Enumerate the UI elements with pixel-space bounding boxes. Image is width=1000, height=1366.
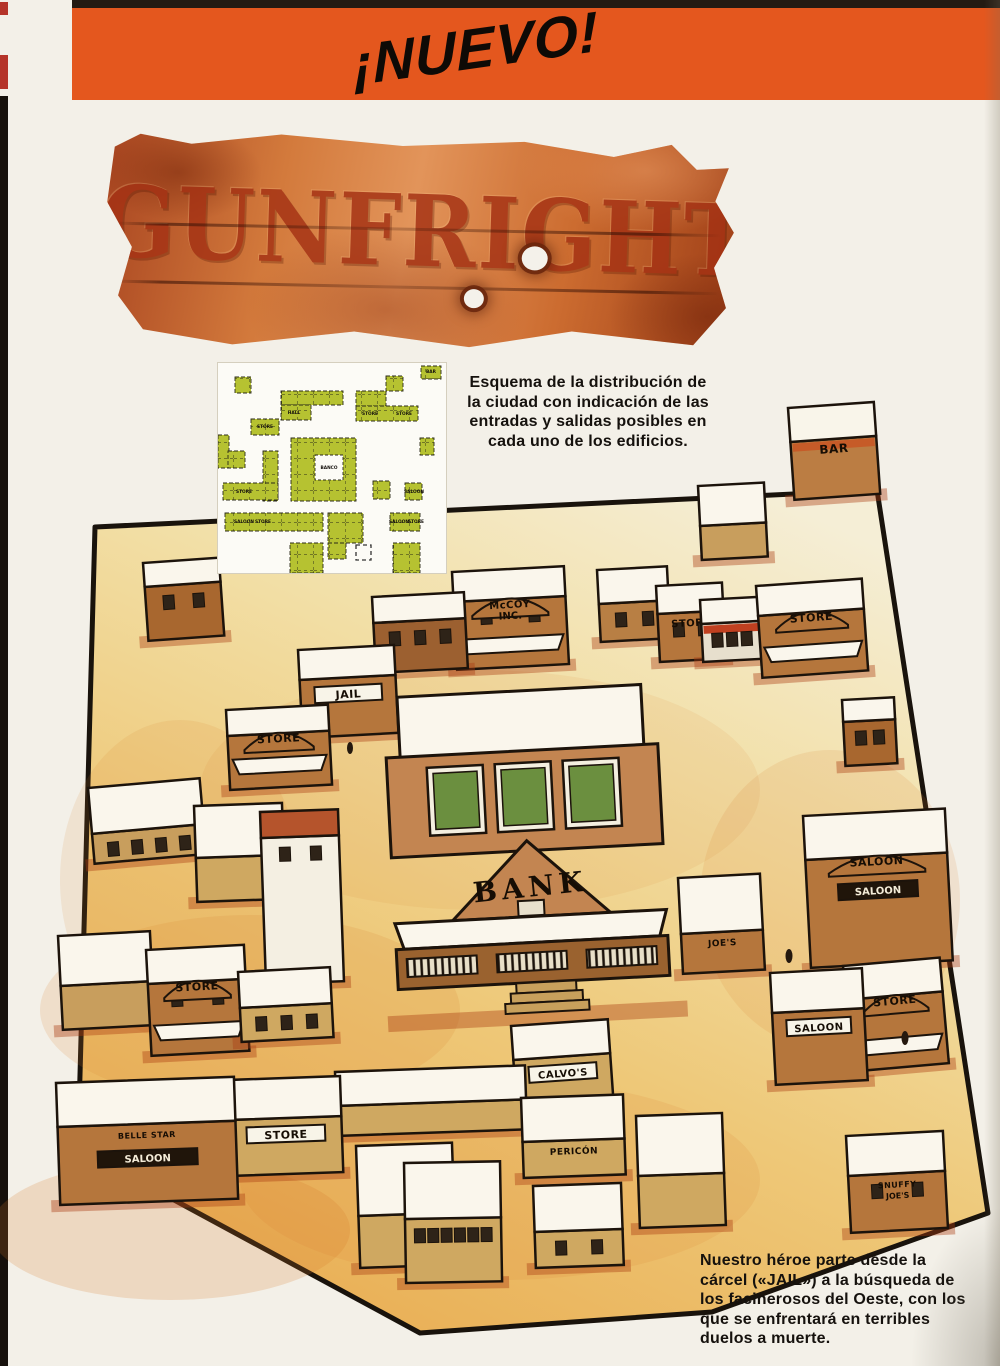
schematic-block-cells (386, 376, 403, 391)
building-roof (226, 705, 329, 736)
building-roof (335, 1065, 526, 1106)
schematic-block-cells (281, 391, 343, 405)
building-facade (61, 981, 155, 1030)
window-icon (179, 835, 191, 850)
window-icon (414, 630, 426, 645)
building (326, 1065, 534, 1143)
building-label: JOE'S (885, 1191, 910, 1201)
window-icon (441, 1228, 452, 1242)
building-facade (261, 835, 344, 984)
schematic-label: STORE (257, 424, 273, 430)
schematic-label: STORE (396, 411, 412, 417)
schematic-block-cells (328, 543, 346, 559)
building-label: JOE'S (707, 938, 737, 950)
building-roof (846, 1131, 945, 1176)
schematic-block-cells (218, 435, 229, 468)
schematic-label: HALL (288, 410, 301, 416)
window-icon (131, 839, 143, 854)
window-icon (193, 593, 205, 608)
schematic-label: STORE (362, 411, 378, 417)
building-roof (533, 1183, 623, 1232)
building-label: STORE (264, 1128, 308, 1143)
building-belle-star: BELLE STARSALOON (47, 1077, 245, 1213)
building-label: JAIL (334, 687, 361, 701)
schematic-block-cells (393, 543, 420, 573)
building-roof (260, 809, 339, 838)
building-snuffy: SNUFFYJOE'S (837, 1131, 955, 1241)
body-paragraph: Nuestro héroe parte desde la cárcel («JA… (700, 1251, 1000, 1349)
building-roof (521, 1094, 624, 1142)
building-label: INC. (499, 610, 523, 622)
building-roof (143, 558, 220, 587)
building-roof (452, 566, 565, 602)
building-roof (88, 778, 204, 834)
building (833, 697, 905, 773)
window-icon (428, 1228, 439, 1242)
window-icon (155, 837, 167, 852)
building-label: SALOON (124, 1153, 171, 1166)
window-icon (107, 842, 119, 857)
building-facade (700, 522, 768, 559)
window-icon (310, 846, 321, 860)
building-roof (698, 483, 766, 526)
building-roof (803, 809, 947, 860)
window-icon (433, 771, 480, 829)
window-icon (256, 1017, 268, 1032)
schematic-block-cells (228, 451, 245, 468)
window-icon (712, 633, 724, 648)
building (524, 1183, 631, 1276)
building-roof (842, 697, 895, 722)
building-store: STORE (217, 704, 339, 797)
porch-railing (586, 946, 657, 968)
building-facade (638, 1173, 726, 1228)
schematic-label: STORE (255, 519, 271, 525)
schematic-block-cells (290, 543, 323, 573)
building (251, 809, 351, 991)
window-icon (741, 631, 753, 646)
building-roof (770, 968, 864, 1013)
building-roof (788, 402, 876, 442)
building (627, 1113, 733, 1235)
porch-railing (407, 955, 478, 977)
schematic-label: SALOON (404, 489, 424, 495)
window-icon (555, 1241, 566, 1255)
schematic-block-cells (373, 481, 390, 499)
window-icon (440, 629, 452, 644)
building-facade (145, 582, 225, 641)
schematic-block-cells (356, 391, 386, 406)
schematic-label: BAR (426, 369, 437, 375)
building (689, 482, 775, 567)
schematic-caption: Esquema de la distribución de la ciudad … (452, 373, 724, 451)
window-icon (454, 1228, 465, 1242)
schematic-block-cells (235, 377, 251, 393)
building-roof (636, 1113, 724, 1176)
building (229, 967, 341, 1050)
building-label: STORE (257, 731, 301, 746)
building-joe-s: JOE'S (669, 873, 772, 981)
building-roof (238, 967, 332, 1008)
window-icon (468, 1228, 479, 1242)
building-roof (404, 1161, 501, 1219)
schematic-block-cells (420, 438, 434, 455)
window-icon (642, 611, 654, 626)
window-icon (306, 1014, 318, 1029)
building-saloon: SALOONSALOON (794, 808, 960, 975)
building-roof (58, 931, 152, 986)
window-icon (481, 1227, 492, 1241)
building (395, 1161, 509, 1290)
window-icon (873, 730, 885, 745)
schematic-label: SALOON (234, 519, 254, 525)
window-icon (163, 595, 175, 610)
porch-railing (497, 951, 568, 973)
window-icon (281, 1015, 293, 1030)
building-roof (146, 945, 246, 984)
building-facade (843, 719, 897, 766)
building-saloon: SALOON (761, 968, 875, 1092)
building-roof (298, 645, 395, 680)
building-facade (523, 1138, 626, 1178)
window-icon (279, 847, 290, 861)
building (49, 931, 162, 1038)
schematic-block-cells (328, 513, 363, 543)
building-roof (511, 1019, 610, 1060)
schematic-label: STORE (408, 519, 424, 525)
schematic-label: SALOON (389, 519, 409, 525)
town-illustration-map: BARMcCOYINC.STORESTOREJAILBANKSTORESALOO… (0, 0, 1000, 1366)
window-icon (414, 1229, 425, 1243)
building-store: STORE (219, 1076, 351, 1183)
schematic-label: STORE (236, 489, 252, 495)
building-facade (681, 930, 765, 974)
window-icon (726, 632, 738, 647)
window-icon (501, 768, 548, 826)
building-facade (535, 1229, 624, 1268)
city-schematic-map: BARHALLSTORESTORESTOREBANCOSTORESALOONSA… (218, 363, 446, 573)
window-icon (591, 1240, 602, 1254)
building-roof (678, 874, 763, 934)
building-bar: BAR (779, 402, 888, 508)
building-label: BAR (819, 441, 849, 457)
pediment-window (518, 900, 545, 916)
building-roof (372, 592, 465, 623)
window-icon (615, 613, 627, 628)
building-roof (56, 1077, 235, 1127)
building-roof (700, 597, 761, 624)
building-peric-n: PERICÓN (512, 1094, 633, 1185)
schematic-label: BANCO (320, 465, 337, 471)
window-icon (569, 764, 616, 822)
building-label: STORE (175, 979, 219, 994)
building-store: STORE (747, 578, 876, 685)
window-icon (855, 731, 867, 746)
building-roof (228, 1076, 341, 1120)
